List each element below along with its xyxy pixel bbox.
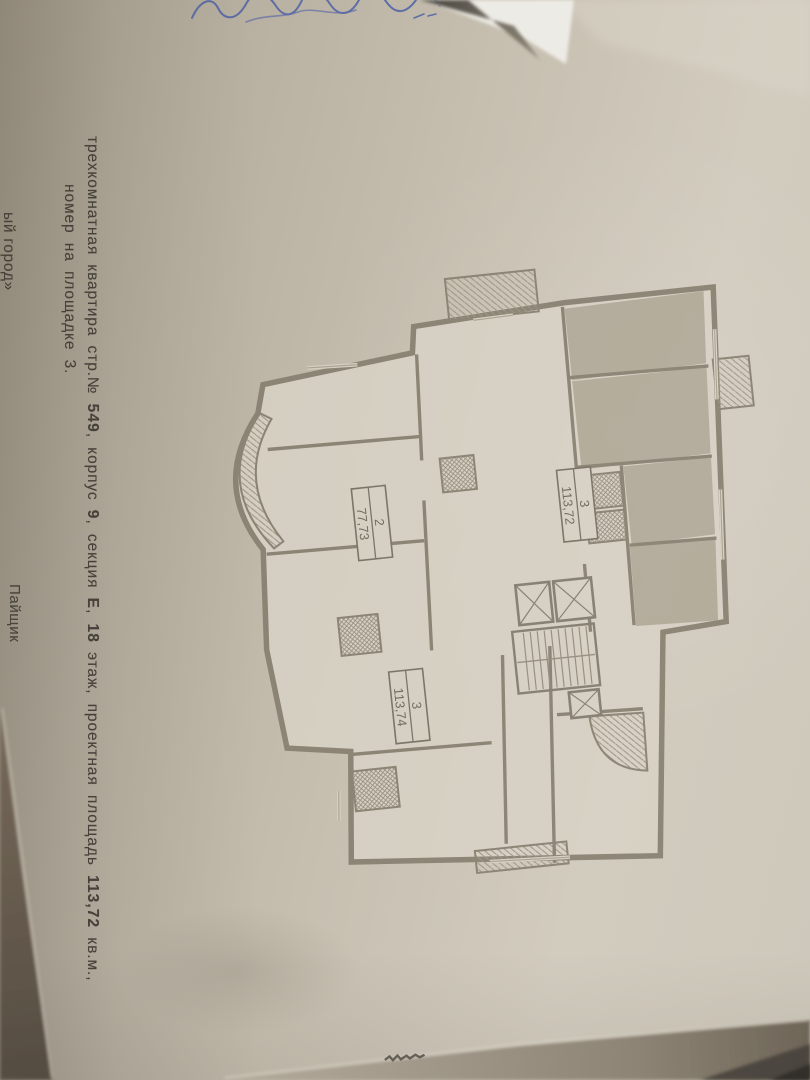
line1-seg-8: этаж, проектная площадь	[84, 643, 101, 875]
label-apartment-77: 2 77,73	[351, 485, 392, 560]
partial-stamp-text: ый город»	[0, 212, 17, 291]
payer-label: Пайщик	[6, 584, 23, 642]
line1-seg-9: 113,72	[84, 875, 101, 928]
elevator-2	[553, 577, 595, 621]
balcony-strip-left	[445, 270, 539, 321]
line1-seg-4: , секция	[84, 520, 101, 598]
description-line-2: номер на площадке 3.	[58, 136, 81, 1056]
label-apartment-11374: 3 113,74	[389, 669, 430, 744]
line1-seg-6: ,	[84, 609, 101, 623]
label-apartment-11372: 3 113,72	[556, 467, 597, 542]
line1-seg-7: 18	[84, 623, 101, 642]
elevator-3	[569, 689, 602, 718]
line1-seg-1: 549	[84, 404, 101, 433]
label-num: 3	[409, 701, 425, 710]
line1-seg-5: Е	[84, 598, 101, 609]
line1-seg-10: кв.м.,	[84, 928, 101, 981]
label-num: 3	[577, 499, 593, 508]
line1-seg-2: , корпус	[84, 433, 101, 510]
photo: { "document": { "line1": [ {"t": "трехко…	[0, 0, 810, 1080]
label-num: 2	[372, 518, 388, 527]
balcony-strip-top	[713, 356, 754, 409]
description-text: трехкомнатная квартира стр.№ 549, корпус…	[58, 136, 104, 1056]
elevator-1	[515, 582, 553, 625]
floor-plan: 2 77,73 3 113,72 3 113,74	[0, 0, 810, 1080]
line1-seg-0: трехкомнатная квартира стр.№	[84, 136, 101, 404]
description-line-1: трехкомнатная квартира стр.№ 549, корпус…	[81, 136, 104, 1056]
line1-seg-3: 9	[84, 510, 101, 520]
